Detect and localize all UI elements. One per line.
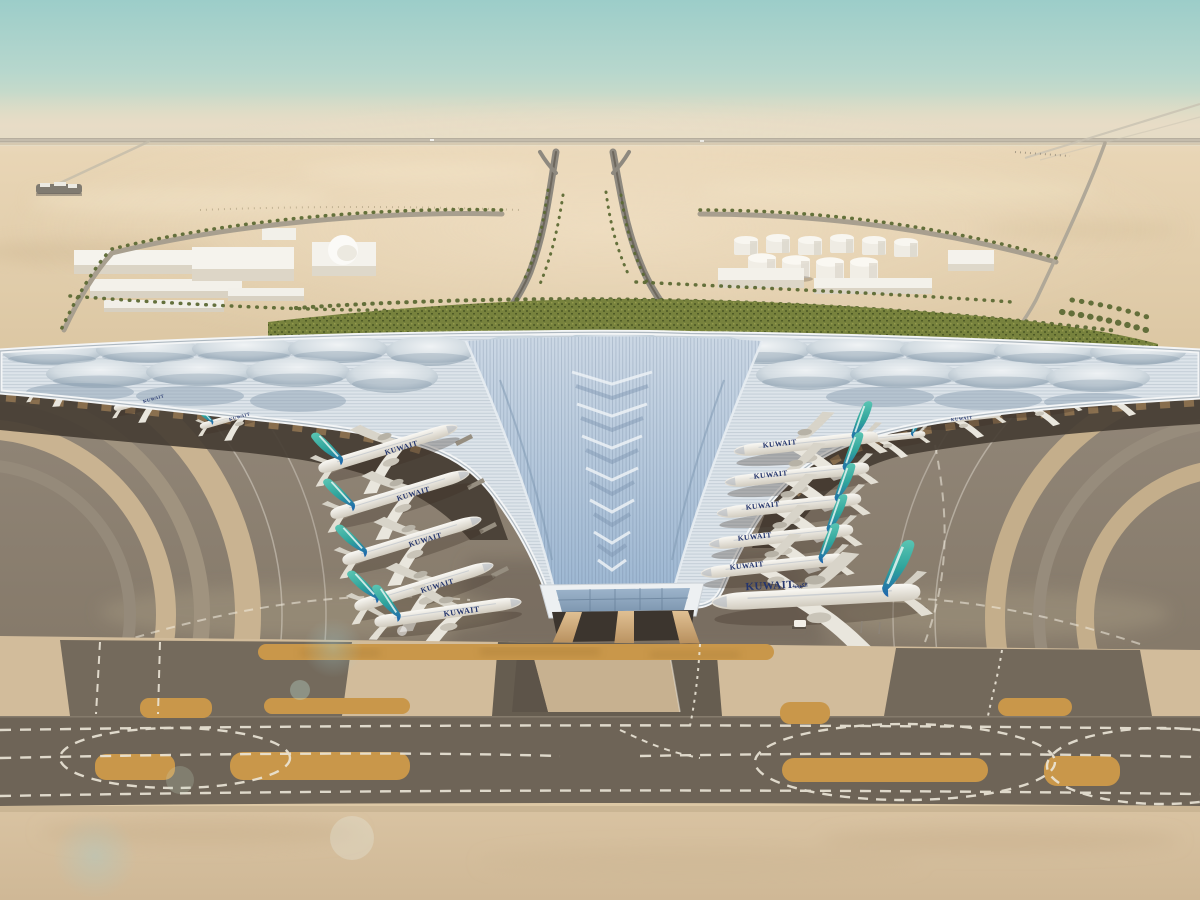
service-van [794, 620, 806, 627]
distant-airfield-cluster [36, 182, 82, 196]
plane-label-arabic: الكويتية [792, 583, 808, 590]
lens-flare-dot [330, 816, 374, 860]
lens-flare-circle [53, 814, 137, 898]
scene-svg: KUWAIT KUWAIT KUWAIT KUWAIT KUWAIT KUWAI… [0, 0, 1200, 900]
distant-vehicle [700, 140, 704, 142]
distant-vehicle [430, 139, 434, 141]
plane-label-large: KUWAIT [745, 579, 795, 594]
lens-flare-dot [397, 626, 407, 636]
lens-flare-circle [303, 618, 363, 678]
lens-flare-dot [290, 680, 310, 700]
terminal-tip-entrance [540, 583, 706, 651]
airport-aerial-render: KUWAIT KUWAIT KUWAIT KUWAIT KUWAIT KUWAI… [0, 0, 1200, 900]
lens-flare-dot [166, 766, 194, 794]
